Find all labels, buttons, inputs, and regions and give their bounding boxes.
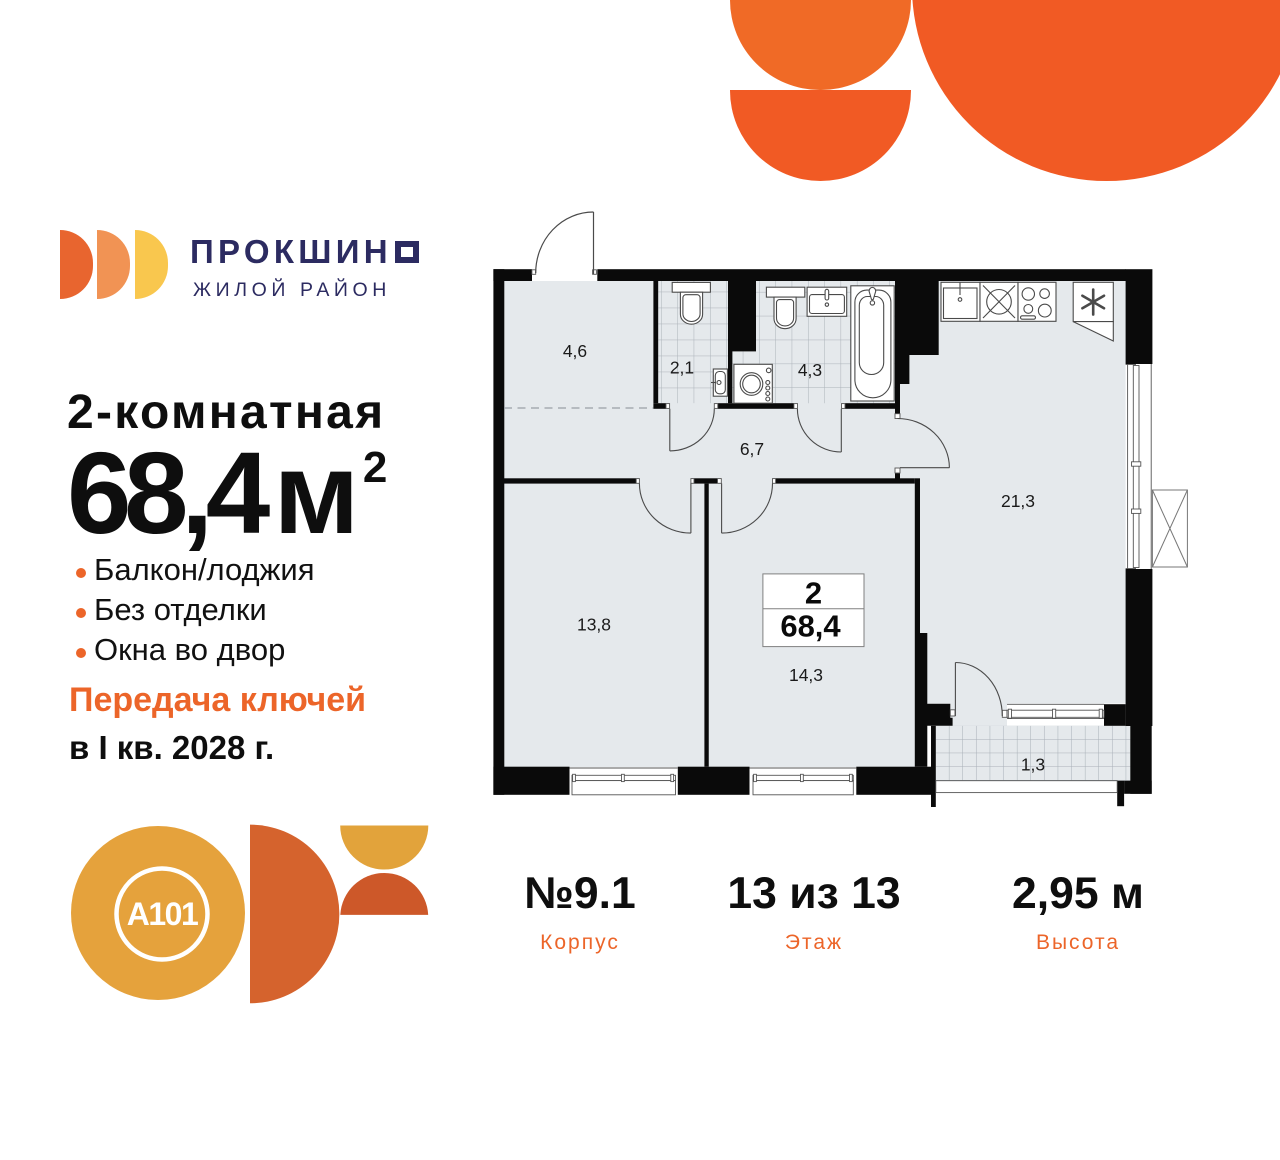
svg-text:21,3: 21,3	[1001, 491, 1035, 511]
svg-text:6,7: 6,7	[740, 439, 764, 459]
svg-text:4,6: 4,6	[563, 341, 587, 361]
svg-text:4,3: 4,3	[798, 360, 822, 380]
svg-text:14,3: 14,3	[789, 665, 823, 685]
svg-text:68,4: 68,4	[780, 609, 841, 644]
svg-text:1,3: 1,3	[1021, 755, 1045, 775]
svg-text:2,1: 2,1	[670, 358, 694, 378]
svg-text:13,8: 13,8	[577, 615, 611, 635]
svg-text:2: 2	[805, 575, 822, 610]
